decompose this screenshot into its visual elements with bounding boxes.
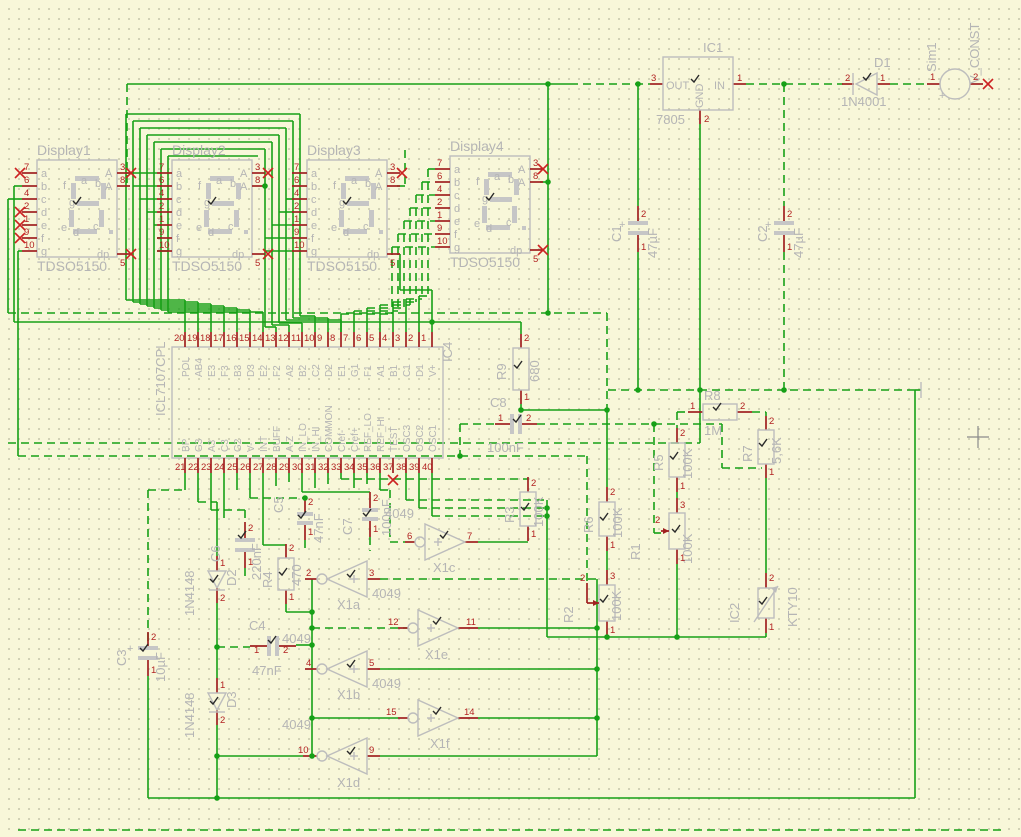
- ic4-pin-name: IN_LO: [298, 423, 309, 452]
- junction-dot: [604, 634, 610, 640]
- x1d-inverter-pin-number: 10: [298, 745, 309, 756]
- x1e-inverter-bubble[interactable]: [408, 623, 418, 633]
- display-name-label: Display2: [172, 142, 226, 158]
- display-pin-number: 7: [24, 162, 29, 173]
- ic4-pin-number: 12: [278, 333, 289, 344]
- display-pin-name: c: [176, 194, 182, 206]
- r4-resistor-pin-number: 2: [289, 543, 294, 554]
- ic4-value-label: ICL7107CPL: [153, 342, 168, 416]
- ic2-temperature-sensor-value-label: KTY10: [785, 587, 800, 627]
- c7-capacitor[interactable]: [362, 517, 378, 521]
- c2-capacitor-polarized-plus-sign: +: [765, 219, 771, 231]
- ic4-pin-name: OSC3: [402, 424, 413, 452]
- junction-dot: [545, 179, 551, 185]
- display-pin-number: 2: [24, 201, 29, 212]
- seven-segment-bar: [244, 230, 248, 234]
- c8-capacitor-pin-number: 1: [498, 413, 503, 424]
- ic4-pin-name: F2: [272, 365, 283, 377]
- c3-capacitor-polarized-pin-number: 1: [151, 665, 156, 676]
- c3-capacitor-polarized-plus-sign: +: [127, 643, 133, 655]
- c3-capacitor-polarized-pin-number: 2: [151, 632, 156, 643]
- ic4-pin-number: 20: [174, 333, 185, 344]
- c7-capacitor-name-label: C7: [340, 518, 355, 535]
- display-pin-number: 7: [159, 162, 164, 173]
- x1b-inverter-pin-number: 5: [369, 658, 374, 669]
- display-glyph-letter: d: [486, 223, 492, 235]
- ic4-pin-number: 10: [304, 333, 315, 344]
- display-pin-number: 8: [390, 175, 395, 186]
- display-name-label: Display3: [307, 142, 361, 158]
- x1e-inverter[interactable]: [418, 610, 458, 646]
- junction-dot: [594, 625, 600, 631]
- ic4-pin-number: 6: [356, 333, 361, 344]
- display-pin-name: g: [311, 246, 317, 258]
- display-pin-name: b: [41, 181, 47, 193]
- x1e-inverter-value-label: 4049: [282, 631, 311, 646]
- ic4-pin-number: 36: [370, 462, 381, 473]
- display-glyph-letter: e: [196, 222, 202, 234]
- ic4-pin-name: F3: [220, 365, 231, 377]
- ic4-pin-number: 24: [214, 462, 225, 473]
- c5-capacitor-pin-number: 1: [308, 527, 313, 538]
- ic4-pin-number: 22: [188, 462, 199, 473]
- c7-capacitor-pin-number: 2: [373, 493, 378, 504]
- ic4-pin-name: OSC2: [415, 424, 426, 452]
- display-glyph-letter: b: [230, 178, 236, 190]
- ic4-pin-number: 39: [409, 462, 420, 473]
- x1c-inverter-pin-number: 6: [407, 531, 412, 542]
- r5-resistor-value-label: 100K: [680, 448, 695, 479]
- display-glyph-letter: c: [228, 221, 234, 233]
- display-pin-number: 10: [24, 240, 35, 251]
- ic4-pin-number: 16: [226, 333, 237, 344]
- r2-trimmer-pin-number: 2: [580, 573, 585, 584]
- junction-dot: [518, 407, 524, 413]
- x1f-inverter-bubble[interactable]: [408, 713, 418, 723]
- r3-resistor-value-label: 100K: [531, 496, 546, 527]
- display-pin-name: dp: [510, 245, 522, 257]
- display-name-label: Display4: [450, 138, 504, 154]
- display-pin-name: A: [375, 168, 383, 180]
- c8-capacitor[interactable]: [510, 414, 514, 434]
- ic4-pin-name: G2: [233, 438, 244, 452]
- r9-resistor-value-label: 680: [527, 360, 542, 382]
- display-pin-name: a: [311, 168, 318, 180]
- c1-capacitor-polarized-value-label: 47µF: [645, 228, 660, 258]
- display-pin-name: a: [176, 168, 183, 180]
- c4-capacitor[interactable]: [275, 636, 279, 656]
- display-glyph-letter: b: [365, 178, 371, 190]
- r3-resistor-pin-number: 1: [531, 529, 536, 540]
- r1-trimmer-wiper-arrow: [663, 528, 669, 534]
- ic4-pin-number: 11: [291, 333, 301, 344]
- r2-trimmer-name-label: R2: [561, 606, 576, 623]
- display-pin-number: 8: [120, 175, 125, 186]
- junction-dot: [545, 310, 551, 316]
- r4-resistor-pin-number: 1: [289, 592, 294, 603]
- display-glyph-letter: d: [343, 227, 349, 239]
- x1b-inverter-name-label: X1b: [337, 687, 360, 702]
- x1e-inverter-pin-number: 11: [466, 617, 476, 628]
- display-pin-number: 8: [533, 171, 538, 182]
- seven-segment-bar: [99, 210, 104, 227]
- seven-segment-bar: [69, 210, 74, 227]
- display-glyph-letter: d: [73, 227, 79, 239]
- c6-capacitor-pin-number: 2: [248, 523, 253, 534]
- display-pin-name: a: [41, 168, 48, 180]
- ic4-pin-name: E2: [259, 364, 270, 377]
- x1a-inverter-pin-number: 2: [306, 568, 311, 579]
- display-pin-name: f: [41, 233, 45, 245]
- ic4-pin-number: 3: [395, 333, 400, 344]
- display-pin-name: g: [41, 246, 47, 258]
- ic4-pin-number: 5: [369, 333, 374, 344]
- display-pin-name: dp: [97, 249, 109, 261]
- ic4-pin-number: 35: [357, 462, 368, 473]
- display-pin-number: 9: [24, 227, 29, 238]
- sim1-voltage-source-name-label: Sim1: [924, 42, 939, 72]
- ic4-pin-name: A-Z: [285, 436, 296, 452]
- display-pin-number: 6: [437, 171, 442, 182]
- ic4-pin-name: COMMON: [324, 405, 335, 452]
- display-pin-name: e: [41, 220, 47, 232]
- ic4-pin-number: 23: [201, 462, 212, 473]
- junction-dot: [545, 81, 551, 87]
- c7-capacitor-pin-number: 1: [373, 524, 378, 535]
- junction-dot: [429, 319, 435, 325]
- r1-trimmer-pin-number: 2: [655, 515, 660, 526]
- ic4-pin-name: IN_HI: [311, 426, 322, 452]
- display-pin-number: 9: [294, 227, 299, 238]
- ic4-pin-number: 30: [292, 462, 303, 473]
- x1a-inverter-value-label: 4049: [372, 586, 401, 601]
- display-pin-number: 8: [255, 175, 260, 186]
- ic4-pin-number: 13: [265, 333, 276, 344]
- junction-dot: [604, 407, 610, 413]
- junction-dot: [781, 81, 787, 87]
- display-glyph-letter: a: [351, 175, 358, 187]
- ic1-pin-number: 3: [651, 73, 656, 84]
- display-glyph-letter: c: [363, 221, 369, 233]
- r2-trimmer-pin-number: 3: [610, 571, 615, 582]
- c8-capacitor-value-label: 100nF: [487, 440, 524, 455]
- display-pin-number: 3: [533, 158, 538, 169]
- d1-diode-left-pin-number: 1: [880, 73, 885, 84]
- r1-trimmer-pin-number: 1: [680, 553, 685, 564]
- display-pin-name: A: [240, 168, 248, 180]
- display-pin-name: d: [311, 207, 317, 219]
- display-pin-name: A: [375, 181, 383, 193]
- display-pin-number: 6: [24, 175, 29, 186]
- x1a-inverter[interactable]: [327, 561, 367, 597]
- c2-capacitor-polarized-value-label: 47µF: [791, 228, 806, 258]
- display-pin-number: 1: [294, 214, 299, 225]
- display-pin-number: 10: [294, 240, 305, 251]
- r4-resistor-value-label: 470: [289, 564, 304, 586]
- display-glyph-letter: f: [63, 180, 67, 192]
- ic4-pin-name: D2: [324, 364, 335, 377]
- d1-diode-left-pin-number: 2: [845, 73, 850, 84]
- display-pin-number: 2: [437, 197, 442, 208]
- display-pin-number: 1: [437, 210, 442, 221]
- display-pin-name: d: [41, 207, 47, 219]
- ic2-temperature-sensor-pin-number: 2: [769, 573, 774, 584]
- r8-resistor-name-label: R8: [704, 388, 721, 403]
- ic4-pin-number: 34: [344, 462, 355, 473]
- r7-resistor-value-label: 5,6K: [769, 437, 784, 464]
- ic4-pin-number: 8: [330, 333, 335, 344]
- x1b-inverter-value-label: 4049: [372, 676, 401, 691]
- r1-trimmer-name-label: R1: [628, 543, 643, 560]
- c5-capacitor-name-label: C5: [271, 496, 286, 513]
- c4-capacitor[interactable]: [267, 636, 271, 656]
- junction-dot: [457, 453, 463, 459]
- x1b-inverter[interactable]: [327, 651, 367, 687]
- d1-diode-left-value-label: 1N4001: [841, 94, 887, 109]
- junction-dot: [302, 495, 308, 501]
- d2-diode-down-name-label: D2: [224, 569, 239, 586]
- x1f-inverter-name-label: X1f: [430, 736, 450, 751]
- ic4-pin-number: 32: [318, 462, 329, 473]
- display-pin-number: 5: [533, 254, 538, 265]
- seven-segment-bar: [339, 210, 344, 227]
- display-pin-name: f: [311, 233, 315, 245]
- display-pin-name: f: [454, 229, 458, 241]
- c6-capacitor[interactable]: [235, 538, 255, 542]
- ic4-pin-name: V+: [428, 364, 439, 377]
- origin-check-icon: [670, 452, 678, 459]
- sim1-voltage-source-pin-number: 2: [973, 72, 978, 83]
- display-pin-number: 5: [120, 258, 125, 269]
- r7-resistor-name-label: R7: [740, 445, 755, 462]
- ic1-pin-gnd-label: GND: [694, 84, 706, 109]
- display-pin-name: A: [240, 181, 248, 193]
- c4-capacitor-pin-number: 1: [254, 645, 259, 656]
- display-name-label: Display1: [37, 142, 91, 158]
- origin-check-icon: [759, 439, 767, 446]
- seven-segment-bar: [204, 210, 209, 227]
- r5-resistor-pin-number: 1: [680, 481, 685, 492]
- sim1-voltage-source-pin-number: 1: [930, 72, 935, 83]
- junction-dot: [697, 387, 703, 393]
- ic4-pin-number: 33: [331, 462, 342, 473]
- display-pin-number: 2: [294, 201, 299, 212]
- seven-segment-bar: [490, 197, 512, 202]
- ic1-value-label: 7805: [656, 112, 685, 127]
- display-glyph-letter: f: [333, 180, 337, 192]
- c4-capacitor-name-label: C4: [249, 618, 266, 633]
- ic4-pin-number: 40: [422, 462, 433, 473]
- ic4-pin-number: 28: [266, 462, 277, 473]
- d3-diode-down-pin-number: 2: [220, 715, 225, 726]
- ic2-temperature-sensor-pin-number: 1: [769, 622, 774, 633]
- d1-diode-left[interactable]: [856, 73, 877, 95]
- r6-resistor-value-label: 100K: [610, 507, 625, 538]
- ic4-pin-number: 31: [305, 462, 316, 473]
- display-glyph-letter: c: [93, 221, 99, 233]
- r1-trimmer-pin-number: 3: [680, 500, 685, 511]
- ic4-pin-name: OSC1: [428, 424, 439, 452]
- ic4-pin-name: A1: [376, 364, 387, 377]
- origin-check-icon: [514, 361, 522, 368]
- ic4-pin-name: B1: [389, 364, 400, 377]
- r9-resistor-name-label: R9: [494, 363, 509, 380]
- ic4-pin-name: A2: [285, 364, 296, 377]
- ic4-pin-number: 1: [421, 333, 426, 344]
- junction-dot: [309, 625, 315, 631]
- x1e-inverter-name-label: X1e: [425, 647, 448, 662]
- c1-capacitor-polarized-plus-sign: +: [619, 219, 625, 231]
- x1c-inverter-pin-number: 7: [467, 531, 472, 542]
- display-glyph-letter: b: [95, 178, 101, 190]
- display-pin-name: f: [176, 233, 180, 245]
- display-pin-name: b: [454, 177, 460, 189]
- ic4-pin-name: C2: [311, 364, 322, 377]
- schematic-canvas[interactable]: IC17805OUTINGND312Display1TDSO5150abfged…: [0, 0, 1021, 837]
- d3-diode-down-value-label: 1N4148: [182, 692, 197, 738]
- x1a-inverter-pin-number: 3: [369, 568, 374, 579]
- c2-capacitor-polarized[interactable]: [774, 221, 794, 225]
- x1f-inverter[interactable]: [418, 700, 458, 736]
- ic4-pin-name: F1: [363, 365, 374, 377]
- r6-resistor-pin-number: 2: [610, 487, 615, 498]
- display-pin-name: dp: [232, 249, 244, 261]
- r9-resistor-pin-number: 1: [524, 392, 529, 403]
- junction-dot: [309, 715, 315, 721]
- ic4-pin-name: POL: [181, 357, 192, 377]
- display-pin-number: 10: [159, 240, 170, 251]
- display-pin-name: a: [454, 164, 461, 176]
- display-pin-name: b: [311, 181, 317, 193]
- ic4-pin-name: TEST: [389, 426, 400, 452]
- d3-diode-down-name-label: D3: [224, 691, 239, 708]
- r3-resistor-pin-number: 2: [531, 478, 536, 489]
- origin-check-icon: [521, 503, 529, 510]
- origin-check-icon: [600, 595, 608, 602]
- seven-segment-bar: [234, 210, 239, 227]
- display-glyph-letter: c: [506, 217, 512, 229]
- display-pin-number: 3: [390, 162, 395, 173]
- d3-diode-down-pin-number: 1: [220, 680, 225, 691]
- ic4-pin-number: 4: [382, 333, 387, 344]
- ic4-pin-number: 21: [175, 462, 186, 473]
- d2-diode-down-value-label: 1N4148: [182, 570, 197, 616]
- display-pin-number: 5: [255, 258, 260, 269]
- origin-check-icon: [691, 75, 699, 82]
- ic4-pin-name: A3: [207, 439, 218, 452]
- junction-dot: [635, 387, 641, 393]
- ic4-pin-number: 27: [253, 462, 264, 473]
- junction-dot: [651, 421, 657, 427]
- ic4-pin-number: 29: [279, 462, 290, 473]
- x1a-inverter-name-label: X1a: [337, 597, 361, 612]
- display-pin-number: 4: [24, 188, 29, 199]
- display-pin-name: dp: [367, 249, 379, 261]
- junction-dot: [635, 81, 641, 87]
- x1d-inverter[interactable]: [327, 738, 367, 774]
- display-pin-name: e: [176, 220, 182, 232]
- r6-resistor-pin-number: 1: [610, 540, 615, 551]
- ic4-pin-name: Cref-: [337, 430, 348, 452]
- display-pin-name: e: [311, 220, 317, 232]
- r7-resistor-pin-number: 1: [769, 467, 774, 478]
- r8-resistor[interactable]: [703, 404, 737, 420]
- ic4-pin-name: REF_LO: [363, 413, 374, 452]
- ic4-pin-name: B3: [233, 364, 244, 377]
- ic4-pin-number: 7: [343, 333, 348, 344]
- seven-segment-bar: [347, 201, 369, 206]
- d1-diode-left-name-label: D1: [874, 55, 891, 70]
- x1c-inverter[interactable]: [425, 524, 465, 560]
- ic4-pin-number: 14: [252, 333, 263, 344]
- junction-dot: [674, 634, 680, 640]
- r5-resistor-name-label: R5: [651, 454, 666, 471]
- ic4-pin-number: 9: [317, 333, 322, 344]
- ic4-pin-name: B2: [298, 364, 309, 377]
- ic4-pin-name: V-: [246, 443, 257, 452]
- ic2-temperature-sensor-name-label: IC2: [727, 603, 742, 623]
- junction-dot: [544, 513, 550, 519]
- display-pin-number: 9: [159, 227, 164, 238]
- display-glyph-letter: b: [508, 174, 514, 186]
- r6-resistor-name-label: R6: [581, 516, 596, 533]
- display-pin-number: 4: [294, 188, 299, 199]
- c4-capacitor-value-label: 47nF: [252, 663, 282, 678]
- display-pin-name: c: [41, 194, 47, 206]
- sim1-voltage-source-plus-sign: +: [939, 90, 945, 102]
- c8-capacitor-name-label: C8: [490, 395, 507, 410]
- ic4-pin-name: C3: [220, 439, 231, 452]
- x1d-inverter-pin-number: 9: [369, 745, 374, 756]
- display-pin-number: 2: [159, 201, 164, 212]
- ic4-pin-number: 17: [213, 333, 224, 344]
- x1f-inverter-pin-number: 14: [464, 707, 475, 718]
- display-pin-number: 6: [159, 175, 164, 186]
- ic4-pin-name: BP: [181, 438, 192, 452]
- seven-segment-bar: [522, 226, 526, 230]
- r5-resistor-pin-number: 2: [680, 428, 685, 439]
- c1-capacitor-polarized[interactable]: [628, 221, 648, 225]
- display-pin-name: A: [105, 168, 113, 180]
- x1b-inverter-pin-number: 4: [306, 658, 311, 669]
- junction-dot: [214, 753, 220, 759]
- seven-segment-bar: [109, 230, 113, 234]
- junction-dot: [309, 609, 315, 615]
- display-pin-name: g: [176, 246, 182, 258]
- display-glyph-letter: f: [198, 180, 202, 192]
- display-pin-number: 9: [437, 223, 442, 234]
- c2-capacitor-polarized-pin-number: 2: [787, 209, 792, 220]
- ic4-pin-name: C1: [402, 364, 413, 377]
- ic4-pin-number: 38: [396, 462, 407, 473]
- ic4-pin-name: D3: [246, 364, 257, 377]
- x1c-inverter-value-label: 4049: [385, 506, 414, 521]
- ic4-pin-name: Cref+: [350, 427, 361, 452]
- junction-dot: [594, 715, 600, 721]
- x1c-inverter-bubble[interactable]: [415, 537, 425, 547]
- junction-dot: [214, 644, 220, 650]
- display-pin-name: A: [518, 177, 526, 189]
- display-pin-number: 3: [120, 162, 125, 173]
- ic4-pin-number: 18: [200, 333, 211, 344]
- ic4-pin-number: 25: [227, 462, 238, 473]
- origin-check-icon: [672, 525, 680, 532]
- junction-dot: [262, 183, 268, 189]
- display-pin-number: 4: [437, 184, 442, 195]
- r8-resistor-pin-number: 1: [690, 401, 695, 412]
- seven-segment-bar: [212, 201, 234, 206]
- ic4-pin-name: G3: [194, 438, 205, 452]
